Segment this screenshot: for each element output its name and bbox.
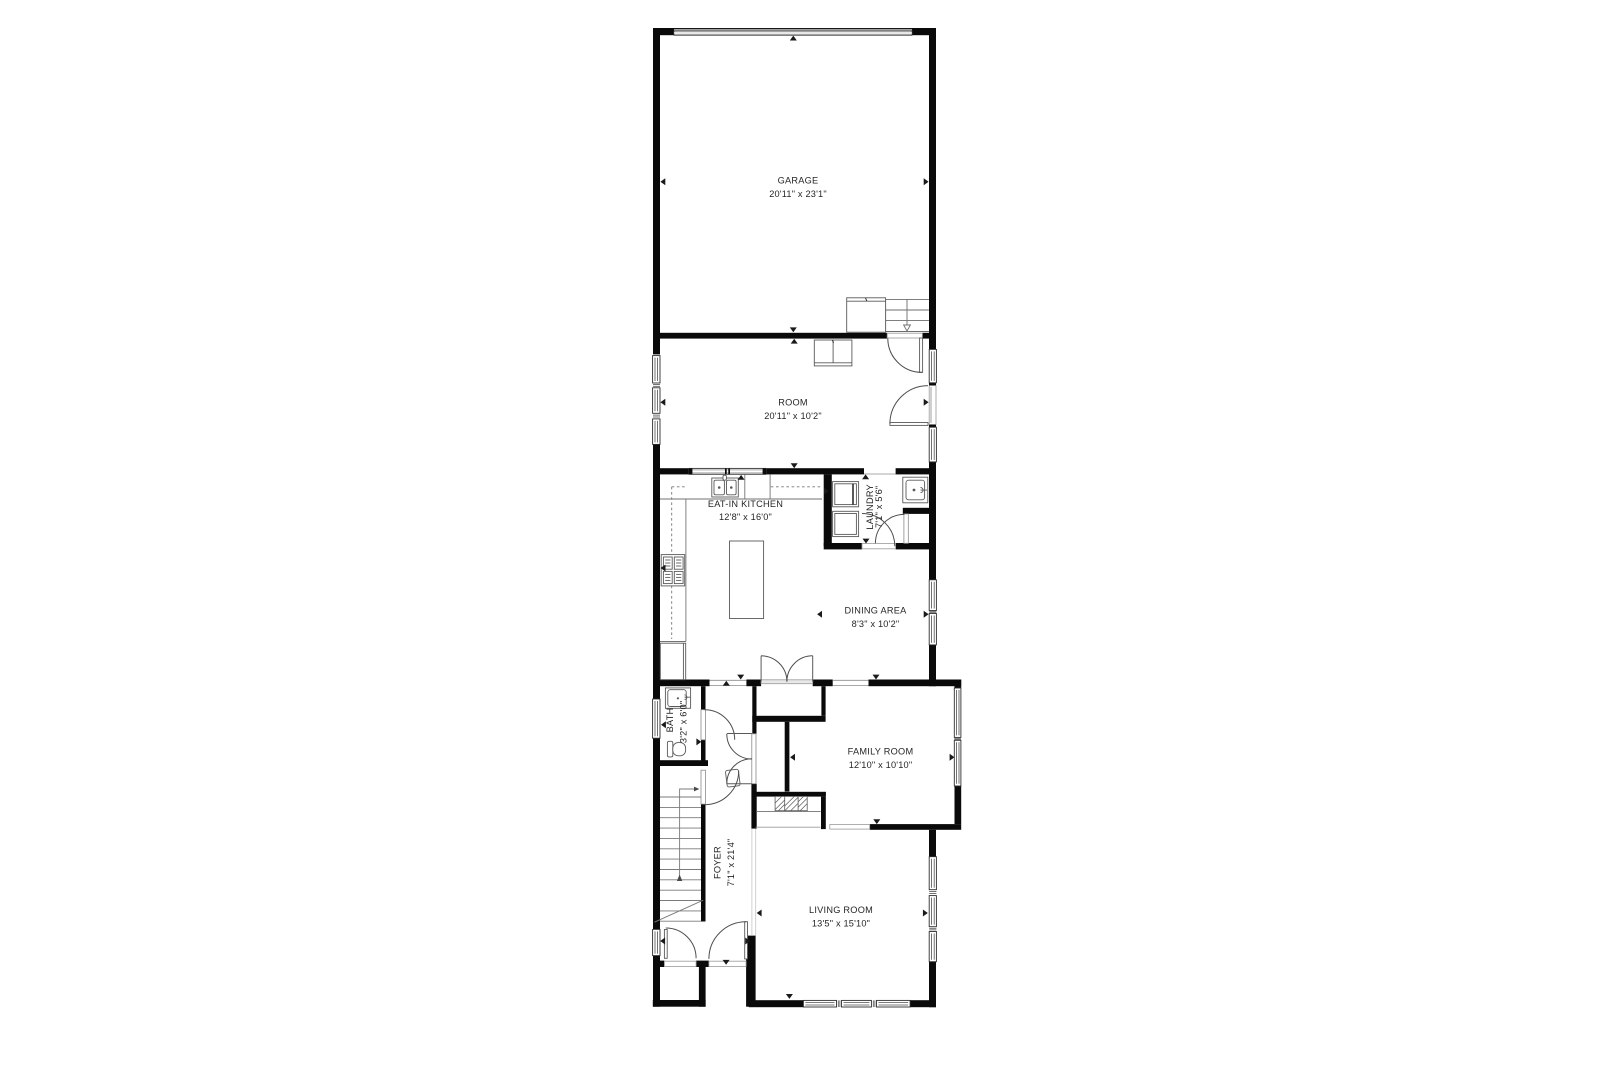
svg-text:20'11" x 23'1": 20'11" x 23'1" (769, 189, 827, 199)
svg-text:ROOM: ROOM (778, 397, 808, 407)
svg-text:FAMILY ROOM: FAMILY ROOM (848, 746, 914, 756)
svg-text:20'11" x 10'2": 20'11" x 10'2" (764, 411, 822, 421)
svg-text:GARAGE: GARAGE (778, 176, 819, 186)
svg-text:12'8" x 16'0": 12'8" x 16'0" (719, 512, 772, 522)
svg-text:13'5" x 15'10": 13'5" x 15'10" (812, 918, 870, 928)
svg-text:EAT-IN KITCHEN: EAT-IN KITCHEN (708, 499, 783, 509)
svg-text:12'10" x 10'10": 12'10" x 10'10" (849, 760, 913, 770)
svg-text:DINING AREA: DINING AREA (845, 605, 908, 615)
svg-text:7'1" x 5'6": 7'1" x 5'6" (874, 486, 884, 528)
svg-text:8'3" x 10'2": 8'3" x 10'2" (852, 619, 900, 629)
svg-text:LIVING ROOM: LIVING ROOM (809, 905, 873, 915)
svg-text:FOYER: FOYER (713, 846, 723, 879)
svg-text:3'2" x 6'0": 3'2" x 6'0" (679, 701, 689, 743)
svg-text:7'1" x 21'4": 7'1" x 21'4" (726, 839, 736, 887)
svg-text:BATH: BATH (665, 708, 675, 733)
